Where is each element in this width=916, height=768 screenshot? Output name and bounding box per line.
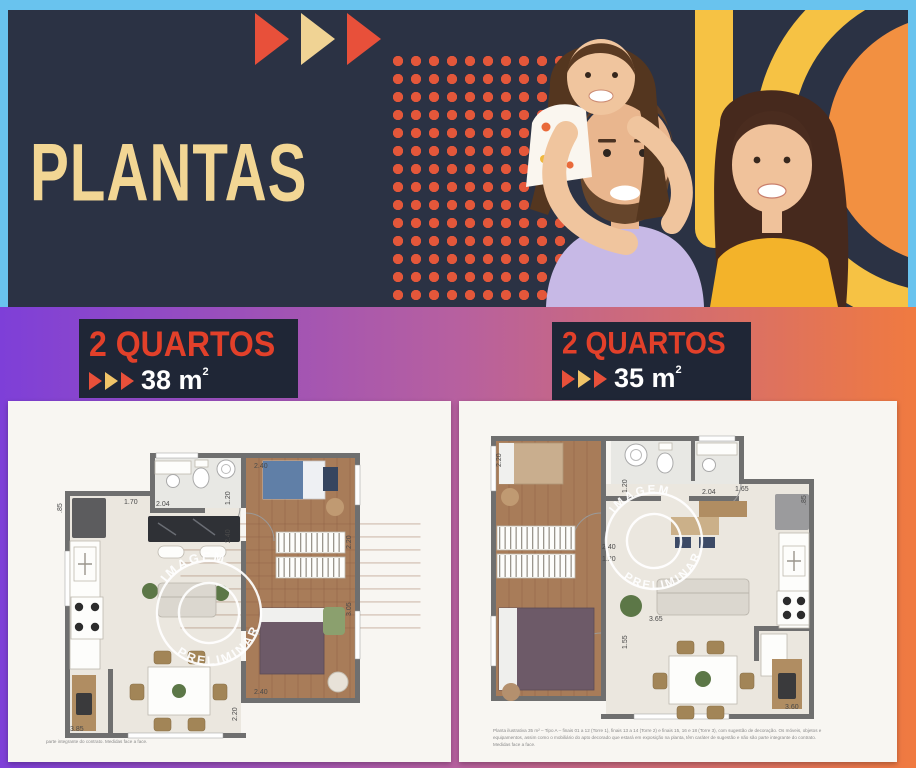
floorplan-38: .85 1.70 2.04 1.20 2.40 2.40 2.20 3.05 2…: [8, 401, 451, 762]
plan-area-value: 38 m: [141, 365, 203, 396]
dimension-label: 2.04: [156, 501, 170, 508]
dimension-label: 2.20: [232, 707, 239, 721]
disclaimer-text: parte integrante do contrato. Medidas fa…: [46, 739, 266, 746]
dimension-label: 3.65: [649, 616, 663, 623]
triple-arrow-icon: [89, 371, 137, 391]
promo-page: PLANTAS 2 QUARTOS 38 m2 2 QUARTOS: [0, 0, 916, 768]
dimension-label: 2.40: [225, 529, 232, 543]
header-background: PLANTAS: [8, 10, 908, 307]
plan-label-title: 2 QUARTOS: [562, 327, 736, 363]
dimension-label: 2.20: [346, 535, 353, 549]
kitchen: [775, 494, 809, 628]
floorplan-card-38: .85 1.70 2.04 1.20 2.40 2.40 2.20 3.05 2…: [8, 401, 451, 762]
page-title: PLANTAS: [30, 127, 307, 221]
plans-section: 2 QUARTOS 38 m2 2 QUARTOS 35 m2: [0, 307, 916, 768]
floorplan-35: 2.20 1.20 2.04 1.65 .85 2.40 1.20 3.65 1…: [459, 401, 897, 762]
dimension-label: 2.40: [602, 544, 616, 551]
plan-area-value: 35 m: [614, 363, 676, 394]
dimension-label: 1.70: [124, 499, 138, 506]
header-banner: PLANTAS: [0, 0, 916, 307]
dimension-label: 1.55: [622, 635, 629, 649]
dimension-label: 1.65: [735, 486, 749, 493]
dimension-label: 2.04: [702, 489, 716, 496]
plan-label-title: 2 QUARTOS: [89, 323, 282, 364]
dimension-label: 3.85: [70, 726, 84, 733]
plan-area-sup: 2: [203, 366, 209, 378]
dimension-label: 2.40: [254, 689, 268, 696]
dimension-label: 1.20: [225, 491, 232, 505]
triple-arrow-icon: [562, 369, 610, 389]
bedroom-2: [499, 608, 594, 701]
plan-label-38: 2 QUARTOS 38 m2: [79, 319, 298, 398]
dimension-label: 3.60: [785, 704, 799, 711]
disclaimer-text: Planta ilustrativa 35 m² – Tipo A – fina…: [493, 728, 828, 749]
dimension-label: 2.20: [496, 453, 503, 467]
mom-figure: [710, 90, 848, 307]
family-photo: [420, 15, 908, 307]
dimension-label: 3.05: [346, 602, 353, 616]
triple-arrow-icon: [255, 13, 387, 75]
dimension-label: 2.40: [254, 463, 268, 470]
plan-label-35: 2 QUARTOS 35 m2: [552, 322, 751, 400]
plan-area-sup: 2: [676, 364, 682, 376]
dimension-label: .85: [801, 495, 808, 505]
floorplan-card-35: 2.20 1.20 2.04 1.65 .85 2.40 1.20 3.65 1…: [459, 401, 897, 762]
dimension-label: .85: [57, 503, 64, 513]
